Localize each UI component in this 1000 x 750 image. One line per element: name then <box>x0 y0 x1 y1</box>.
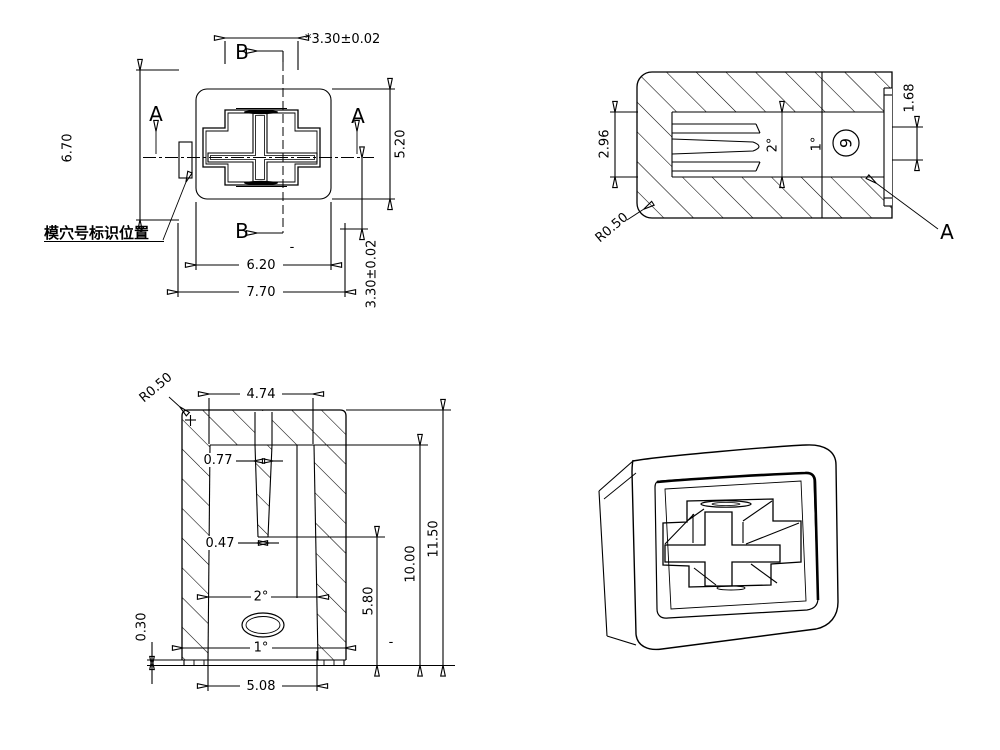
iso-side-face <box>599 461 636 645</box>
dim-rib-bottom-label: 0.47 <box>206 536 235 551</box>
section-b-label-top: B <box>235 40 249 64</box>
cavity-note-label: 模穴号标识位置 <box>44 224 149 242</box>
section-a-label-left: A <box>149 102 163 126</box>
dim-rib-top-label: 0.77 <box>204 453 233 468</box>
cavity-number-label: 9 <box>837 138 856 148</box>
dim-draft-outer-label: 1° <box>254 641 269 656</box>
front-radius-label: R0.50 <box>137 370 176 406</box>
dim-body-width-label: 7.70 <box>247 285 276 300</box>
dim-total-height-label: 11.50 <box>427 520 442 557</box>
corner-radius-label: R0.50 <box>593 210 632 246</box>
cavity-number-marker <box>179 142 192 178</box>
isometric-view <box>599 445 838 650</box>
front-radius-leader <box>169 397 180 407</box>
cad-drawing-sheet: B B A A *3.30±0.02 6.70 5.20 3.30±0.02 6… <box>0 0 1000 750</box>
dim-draft-channel-label: 2° <box>766 138 781 153</box>
engineering-drawing: B B A A *3.30±0.02 6.70 5.20 3.30±0.02 6… <box>0 0 1000 750</box>
dim-inner-width-label: 6.20 <box>247 258 276 273</box>
dim-channel-height-label: 2.96 <box>598 130 613 159</box>
dim-skirt-thickness-label: 0.30 <box>135 613 150 642</box>
chamfer-lens-bottom <box>244 181 278 185</box>
dim-body-height-label: 6.70 <box>61 134 76 163</box>
dim-channel-height <box>610 112 638 177</box>
dim-end-opening <box>892 127 923 160</box>
dash-mark: - <box>290 240 295 255</box>
section-a-label-right: A <box>351 104 365 128</box>
chamfer-lens-top <box>244 110 278 114</box>
dim-skirt-thickness <box>147 642 182 684</box>
dim-end-opening-label: 1.68 <box>903 84 918 113</box>
top-view: B B A A *3.30±0.02 6.70 5.20 3.30±0.02 6… <box>44 32 409 308</box>
dim-mouth-width-label: 5.08 <box>247 679 276 694</box>
dim-rib-depth-label: 5.80 <box>362 587 377 616</box>
dim-stem-height-label: 3.30±0.02 <box>365 240 380 309</box>
dim-draft-inner-label: 2° <box>254 590 269 605</box>
dim-cavity-depth-label: 10.00 <box>404 545 419 582</box>
front-dash-mark: - <box>389 635 394 650</box>
side-section-view: 2° 1° 9 2.96 1.68 R0.50 A <box>593 72 955 246</box>
dim-inner-height-label: 5.20 <box>394 130 409 159</box>
dim-body-height <box>136 70 179 220</box>
front-section-view: 1° R0.50 4.74 0.77 0.47 2° 0.30 <box>135 370 456 694</box>
dim-draft-tip-label: 1° <box>810 137 825 152</box>
dim-stem-width-label: *3.30±0.02 <box>305 32 380 47</box>
section-a-label: A <box>940 220 954 244</box>
section-b-label-bottom: B <box>235 219 249 243</box>
dim-cavity-top-width-label: 4.74 <box>247 387 276 402</box>
